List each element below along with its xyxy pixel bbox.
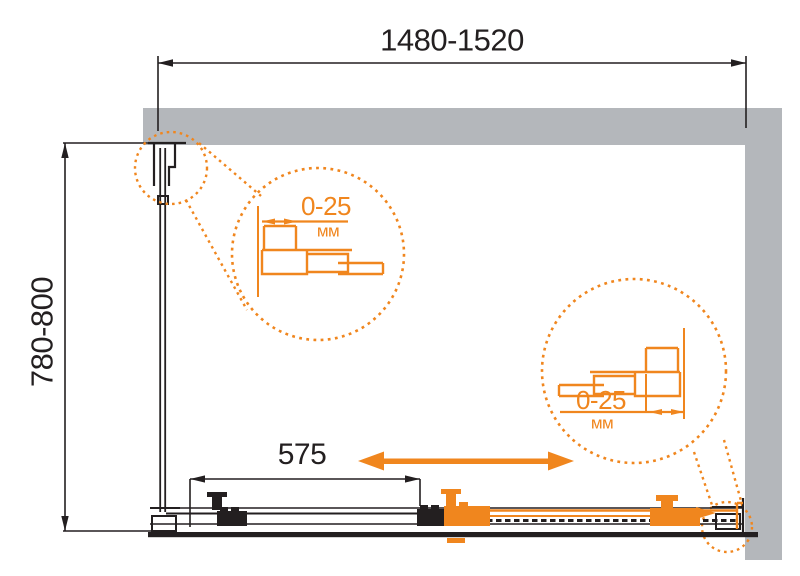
- fixed-panel-rollers: [207, 492, 451, 526]
- overall-width-dimension-lines: [158, 56, 746, 131]
- callout-connector-right: [694, 440, 743, 508]
- door-panel-label: 575: [278, 440, 327, 470]
- shower-enclosure-dimension-drawing: 1480-1520 780-800 575 0-25 мм 0-25 мм: [0, 0, 800, 576]
- top-left-wall-profile: [148, 143, 186, 204]
- detail-right-unit-label: мм: [591, 415, 613, 432]
- detail-left-range-label: 0-25: [301, 193, 351, 219]
- diagram-linework: [0, 0, 800, 576]
- detail-left-unit-label: мм: [317, 223, 339, 240]
- callout-connector-left: [186, 143, 261, 310]
- detail-circle-right: [542, 279, 726, 463]
- side-depth-label: 780-800: [27, 277, 58, 387]
- overall-width-label: 1480-1520: [380, 25, 524, 56]
- detail-right-range-label: 0-25: [576, 387, 626, 413]
- slide-direction-arrow-icon: [358, 452, 574, 471]
